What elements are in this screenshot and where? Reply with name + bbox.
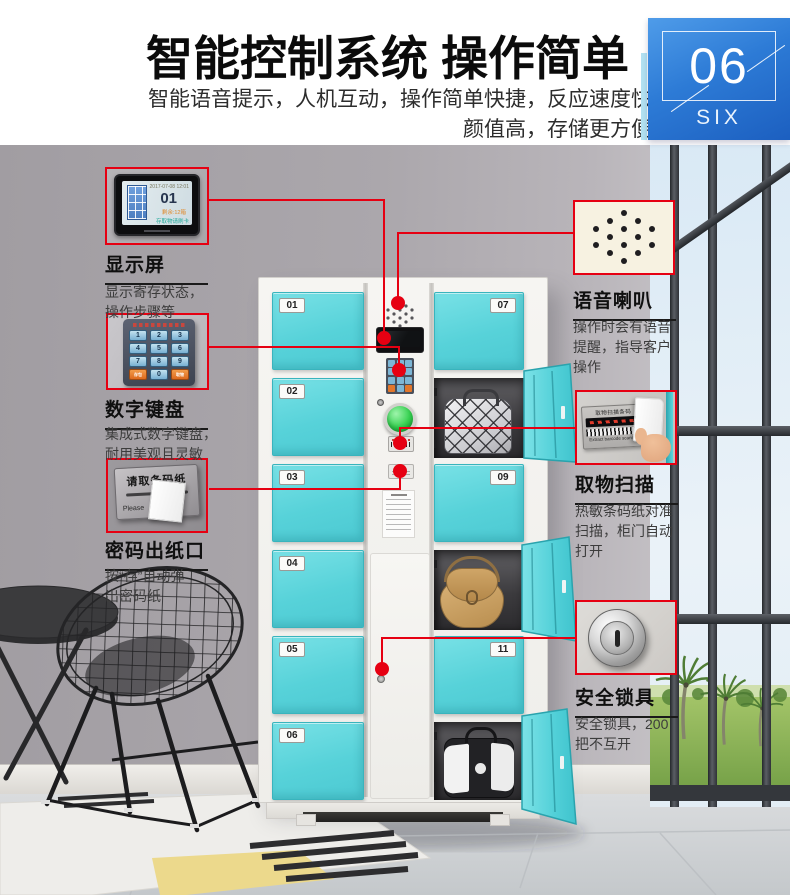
bag-logo [475,763,486,774]
desc-line: 安全锁具，200 [575,714,668,734]
desc-line: 操作 [573,357,671,377]
window-mullion [762,145,771,807]
subtitle-line: 颜值高，存储更方便 [60,115,652,145]
badge-word: SIX [648,106,790,130]
door-number-label: 09 [490,470,516,485]
locker-door-02: 02 [272,378,364,456]
hinge [434,440,437,448]
key-2: 2 [150,330,168,341]
bag-clasp [466,590,478,605]
smart-locker-ad-page: 01 02 03 04 05 06 07 09 11 [0,0,790,895]
screen-box-number: 01 [160,190,177,207]
callout-desc-lock: 安全锁具，200 把不互开 [575,714,668,754]
callout-title-scan: 取物扫描 [575,470,678,505]
callout-box-paper-outlet: 请取条码纸 Please [106,458,208,533]
security-lock-cylinder [377,675,385,683]
locker-diagram-graphic [127,185,147,220]
callout-box-scan: 取物扫描条码 Extract barcode scanning [575,390,677,465]
locker-cabinet: 01 02 03 04 05 06 07 09 11 [258,277,550,839]
door-number-label: 07 [490,298,516,313]
subtitle-line: 智能语音提示，人机互动，操作简单快捷，反应速度快 [60,85,652,115]
sticker-text-lines [386,499,411,534]
keypad-key [388,377,395,384]
keypad-key [405,377,412,384]
keypad-key [397,360,404,367]
black-white-bag [444,738,514,798]
slot-lines [392,469,410,475]
desc-line: 耐用美观且灵敏 [105,444,217,464]
desc-line: 操作时会有语音 [573,317,671,337]
control-keypad [386,358,414,394]
key-7: 7 [129,356,147,367]
callout-box-display: 2017-07-08 12:01 01 剩余:12箱 存取物请刷卡 [105,167,209,245]
password-paper-slip [148,479,186,522]
callout-title-speaker: 语音喇叭 [573,286,676,321]
locker-door-09: 09 [434,464,524,542]
base-kick-recess [303,812,503,822]
desc-line: 显示寄存状态， [105,282,203,302]
keypad-key-store [388,385,395,392]
locker-door-11: 11 [434,636,524,714]
callout-box-lock [575,600,677,675]
keypad-key [405,360,412,367]
key-take: 取物 [171,369,189,380]
callout-title-lock: 安全锁具 [575,683,678,718]
callout-desc-paper: 按“存”自动弹 出密码纸 [105,566,184,606]
keypad-key-take [405,385,412,392]
page-subtitle: 智能语音提示，人机互动，操作简单快捷，反应速度快 颜值高，存储更方便 [60,85,652,145]
door-number-label: 05 [279,642,305,657]
password-paper-slot [388,464,414,479]
keyhole [615,630,620,647]
door-number-label: 02 [279,384,305,399]
display-screen [380,331,420,347]
key-6: 6 [171,343,189,354]
desc-line: 出密码纸 [105,586,184,606]
locker-door-07: 07 [434,292,524,370]
plate-text-en: Please [123,505,145,513]
lock-outer-ring [588,609,646,667]
locker-door-06: 06 [272,722,364,800]
screen-status-line2: 存取物请刷卡 [156,217,189,225]
window-sill [650,785,790,801]
barcode-scanner-slot [388,436,414,452]
badge-accent-stripe [641,53,647,140]
hinge [434,782,437,790]
tan-handbag [440,558,504,628]
desc-line: 热敏条码纸对准 [575,501,673,521]
door-number-label: 11 [490,642,516,657]
led-strip [392,439,410,441]
callout-title-display: 显示屏 [105,250,208,285]
locker-door-01: 01 [272,292,364,370]
bag-handle [465,727,497,743]
key-9: 9 [171,356,189,367]
quilted-bag [444,398,512,454]
door-number-label: 06 [279,728,305,743]
hinge [434,560,437,568]
key-1: 1 [129,330,147,341]
door-number-label: 03 [279,470,305,485]
locker-door-04: 04 [272,550,364,628]
sticker-header [391,494,407,496]
key-store: 存包 [129,369,147,380]
open-compartment-08 [434,378,524,458]
section-number-badge: 06 SIX [648,18,790,140]
keypad-key [405,368,412,375]
badge-frame: 06 [662,31,776,101]
open-compartment-12 [434,722,524,800]
callout-desc-scan: 热敏条码纸对准 扫描，柜门自动 打开 [575,501,673,561]
desc-line: 打开 [575,541,673,561]
barcode-strip [391,442,411,447]
keypad-grid: 1 2 3 4 5 6 7 8 9 存包 0 取物 [129,330,189,380]
key-3: 3 [171,330,189,341]
lock-cylinder [600,621,634,655]
desc-line: 操作步骤等 [105,302,203,322]
keypad-key [397,385,404,392]
desc-line: 扫描，柜门自动 [575,521,673,541]
keypad-key [388,368,395,375]
callout-desc-display: 显示寄存状态， 操作步骤等 [105,282,203,322]
control-display [376,327,424,353]
locker-door-03: 03 [272,464,364,542]
display-screen: 2017-07-08 12:01 01 剩余:12箱 存取物请刷卡 [122,181,192,225]
key-4: 4 [129,343,147,354]
keypad-key [388,360,395,367]
keypad-header-text [133,323,185,327]
speaker-holes [575,202,673,273]
green-button [384,403,416,435]
page-title: 智能控制系统 操作简单 [146,20,629,89]
screen-status-line1: 剩余:12箱 [162,208,186,216]
keypad-key [397,377,404,384]
window-mullion [708,145,717,807]
keypad-panel: 1 2 3 4 5 6 7 8 9 存包 0 取物 [123,319,195,386]
key-8: 8 [150,356,168,367]
open-compartment-10 [434,550,524,630]
desc-line: 集成式数字键盘， [105,424,217,444]
desc-line: 按“存”自动弹 [105,566,184,586]
hinge [434,388,437,396]
callout-desc-speaker: 操作时会有语音 提醒，指导客户 操作 [573,317,671,377]
panel-lock [377,399,384,406]
display-brand-mark [144,230,170,232]
cabinet-foot [490,814,510,826]
display-bezel: 2017-07-08 12:01 01 剩余:12箱 存取物请刷卡 [114,174,200,236]
hinge [434,612,437,620]
desc-line: 提醒，指导客户 [573,337,671,357]
key-5: 5 [150,343,168,354]
door-number-label: 04 [279,556,305,571]
key-0: 0 [150,369,168,380]
cabinet-foot [296,814,316,826]
badge-number: 06 [663,32,775,102]
callout-desc-keypad: 集成式数字键盘， 耐用美观且灵敏 [105,424,217,464]
door-number-label: 01 [279,298,305,313]
hinge [434,732,437,740]
speaker-grille [384,300,416,328]
callout-box-speaker [573,200,675,275]
keypad-key [397,368,404,375]
callout-box-keypad: 1 2 3 4 5 6 7 8 9 存包 0 取物 [106,313,209,390]
instruction-sticker [382,490,415,538]
desc-line: 把不互开 [575,734,668,754]
locker-door-05: 05 [272,636,364,714]
